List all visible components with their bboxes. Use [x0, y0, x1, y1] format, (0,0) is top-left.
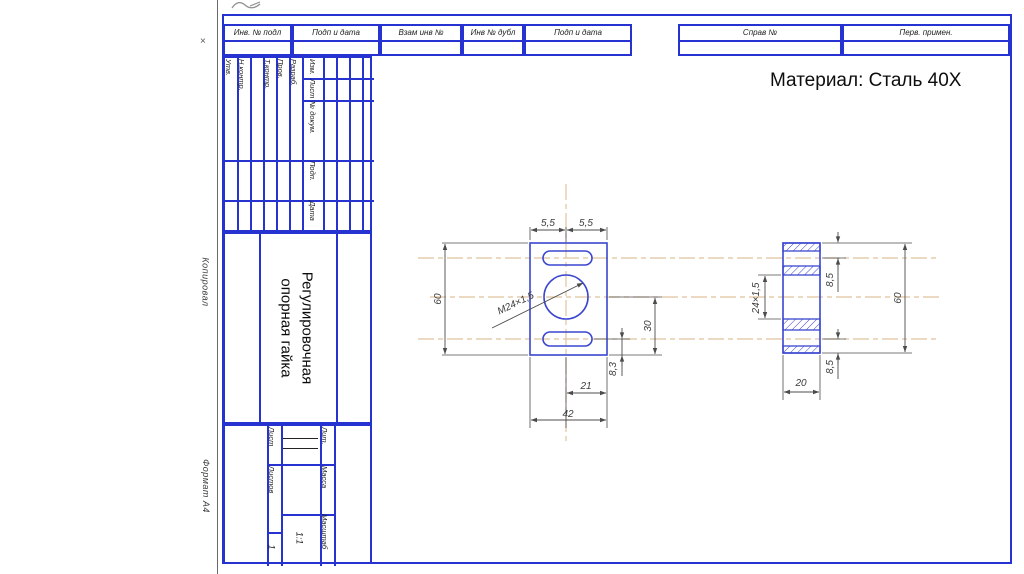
header-cell-label: Инв № дубл: [464, 26, 522, 42]
dim-42: 42: [562, 409, 574, 420]
dim-top-left: 5,5: [541, 218, 555, 229]
header-cell-label: Инв. № подл: [225, 26, 290, 42]
extension-lines: [442, 227, 912, 428]
dim-sec-8-5-top: 8,5: [825, 273, 836, 287]
sheet-edge-line: [217, 0, 218, 574]
titleblock-label-dokum: № докум.: [307, 101, 317, 134]
header-cell-sprav: Справ №: [678, 24, 842, 56]
titleblock-label-izm: Изм.: [307, 59, 317, 75]
sheets-value-cell: 1: [265, 531, 278, 562]
titleblock-label-sheet: Лист: [266, 427, 276, 446]
titleblock-label-prov: Пров.: [275, 59, 285, 79]
titleblock-label-sheets: Листов: [266, 466, 276, 493]
titleblock-label-data: Дата: [307, 201, 317, 221]
margin-format: Формат А4: [196, 432, 216, 540]
titleblock-label-tkontr: Т.контр.: [262, 59, 272, 89]
dim-21: 21: [579, 381, 591, 392]
header-cell-perv-primen: Перв. примен.: [842, 24, 1010, 56]
clipped-artifact: [230, 0, 270, 10]
dim-height-60: 60: [433, 293, 444, 305]
scale-value: 1:1: [294, 531, 304, 544]
material-note: Материал: Сталь 40Х: [770, 70, 961, 92]
header-cell-podp-data-1: Подп и дата: [292, 24, 380, 56]
dim-30: 30: [643, 320, 654, 332]
header-cell-vzam-inv: Взам инв №: [380, 24, 462, 56]
part-title-line1: Регулировочная: [296, 272, 317, 385]
header-cell-inv-dubl: Инв № дубл: [462, 24, 524, 56]
dim-sec-20: 20: [794, 378, 807, 389]
header-cell-label: Подп и дата: [526, 26, 630, 42]
dim-sec-thread: 24×1,5: [751, 282, 762, 314]
titleblock-label-mass: Масса: [319, 466, 329, 488]
titleblock-label-podp: Подп.: [307, 161, 317, 181]
header-cell-label: Перв. примен.: [844, 26, 1008, 42]
titleblock-label-scale: Масштаб: [319, 514, 329, 549]
dim-top-right: 5,5: [579, 218, 593, 229]
header-cell-inv-podl: Инв. № подл: [223, 24, 292, 56]
header-cell-podp-data-2: Подп и дата: [524, 24, 632, 56]
dim-sec-60: 60: [893, 292, 904, 304]
centerlines: [418, 184, 940, 442]
dim-8-3: 8,3: [608, 362, 619, 376]
section-view: [783, 243, 820, 353]
scale-value-cell: 1:1: [280, 513, 318, 562]
titleblock-label-list: Лист: [307, 79, 317, 98]
front-view: [530, 243, 607, 355]
titleblock-label-nkontr: Н.контр.: [236, 59, 246, 91]
titleblock-label-lit: Лит.: [319, 427, 329, 445]
titleblock-label-utv: Утв.: [223, 59, 233, 76]
drawing-views: 5,5 5,5 60 30 8,3 21 42 М24×1,5 8,5 8,5 …: [400, 170, 960, 460]
part-title-cell: Регулировочная опорная гайка: [258, 233, 334, 423]
titleblock-label-razrab: Разраб.: [288, 59, 298, 86]
margin-cross-mark: ×: [200, 36, 206, 47]
sheets-value: 1: [266, 544, 276, 549]
header-cell-label: Справ №: [680, 26, 840, 42]
margin-copied: Копировал: [196, 232, 216, 332]
header-cell-label: Взам инв №: [382, 26, 460, 42]
header-cell-label: Подп и дата: [294, 26, 378, 42]
part-title-line2: опорная гайка: [275, 272, 296, 385]
dim-sec-8-5-bottom: 8,5: [825, 360, 836, 374]
